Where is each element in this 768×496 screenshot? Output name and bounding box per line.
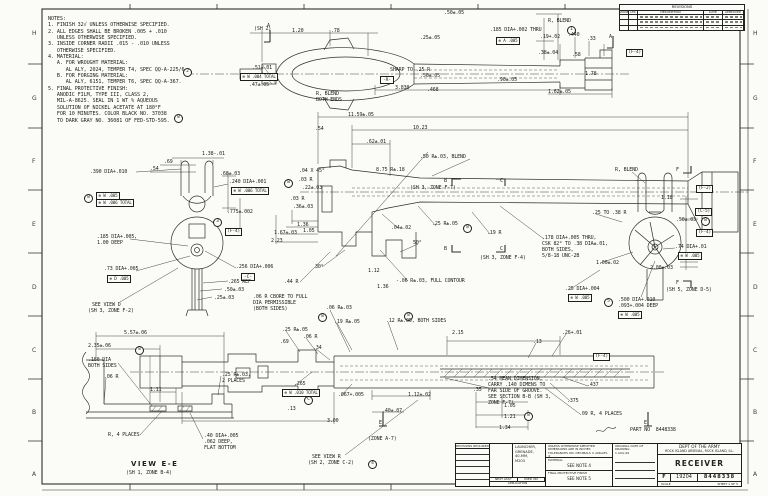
balloon-ref: 8	[135, 346, 144, 355]
dimension-label: .19 R±.05	[334, 320, 360, 326]
dimension-label: .265	[294, 382, 305, 388]
signature-row	[615, 471, 655, 479]
dimension-label: .78	[331, 29, 340, 35]
dimension-label: R, BLEND	[615, 168, 638, 174]
application-label: APPLICATION	[490, 481, 545, 486]
rev-cell	[629, 15, 638, 19]
rev-cell	[638, 15, 704, 19]
dimension-label: 2.35±.06	[88, 344, 111, 350]
dimension-label: .69	[164, 160, 173, 166]
datum-box: -R-	[380, 76, 394, 84]
fscm-code: 19204	[671, 474, 698, 481]
dimension-label: BOTH ENDS	[316, 98, 342, 104]
feature-control-frame: ⊕ A .005	[496, 37, 520, 45]
note-line: 3. INSIDE CORNER RADII .015 - .010 UNLES…	[48, 41, 187, 47]
balloon-ref: C	[304, 396, 313, 405]
rev-cell	[620, 15, 629, 19]
zone-letter-b: B	[32, 409, 36, 416]
dimension-label: .54	[315, 127, 324, 133]
next-assy-cell	[490, 444, 513, 477]
rev-cell	[704, 20, 723, 24]
dimension-label: .067+.005	[338, 393, 364, 399]
revisions-column-label: DATE	[704, 11, 723, 15]
dimension-label: .25±.05	[420, 36, 440, 42]
dimension-label: -.06 R±.03, FULL CONTOUR	[396, 279, 465, 285]
application-block: LAUNCHER,GRENADE,40-MM,M203 NEXT ASSY US…	[490, 444, 546, 486]
dimension-label: .13	[287, 407, 296, 413]
dimension-label: .04 X 45°	[299, 169, 325, 175]
dimension-label: FLAT BOTTOM	[204, 446, 235, 452]
engineering-drawing-sheet: NOTES:1. FINISH 32√ UNLESS OTHERWISE SPE…	[0, 0, 768, 496]
signature-block: ORIGINAL DATE OF DRAWING 1 AUG 69	[613, 444, 658, 486]
dimension-label: .50±.05	[420, 74, 440, 80]
dimension-label: 5/8-18 UNC-2B	[542, 254, 579, 260]
dimension-label: ZONE F-7)	[488, 401, 514, 407]
dimension-label: .06 R	[104, 375, 118, 381]
dimension-label: 10.23	[413, 126, 427, 132]
dimension-label: 1.12±.02	[408, 393, 431, 399]
dimension-label: 1.11	[150, 388, 161, 394]
note-line: TO DARK GRAY NO. 36081 OF FED-STD-595.	[48, 118, 187, 124]
dimension-label: F	[676, 281, 679, 287]
dimension-label: 1.21	[504, 415, 515, 421]
dimension-label: .12 R±.05, BOTH SIDES	[386, 319, 446, 325]
dimension-label: 2.00±.03	[650, 266, 673, 272]
dimension-label: .093+.004 DEEP	[618, 304, 658, 310]
revision-row	[620, 26, 744, 31]
dimension-label: .74 DIA+.01	[675, 245, 706, 251]
balloon-ref: 8	[524, 412, 533, 421]
revisions-column-label: DESCRIPTION	[638, 11, 704, 15]
dimension-label: 1.12	[368, 269, 379, 275]
dimension-label: 2 PLACES	[222, 379, 245, 385]
rev-cell	[629, 26, 638, 30]
zone-letter-e: E	[32, 221, 36, 228]
rev-cell	[704, 15, 723, 19]
dimension-label: .437	[587, 383, 598, 389]
dimension-label: .40±.07	[382, 409, 402, 415]
zone-letter-c: C	[32, 347, 36, 354]
estimates-block: REVISIONS REQUIRED	[456, 444, 490, 486]
zone-letter-g: G	[753, 95, 758, 102]
dimension-label: .468	[427, 88, 438, 94]
feature-control-frame: ⊕ W .004 TOTAL	[240, 73, 278, 81]
rev-cell	[629, 20, 638, 24]
revisions-column-label: APPROVED	[723, 11, 744, 15]
dimension-label: .265 REF	[228, 280, 251, 286]
revisions-column-label: LTR	[629, 11, 638, 15]
title-block: REVISIONS REQUIRED LAUNCHER,GRENADE,40-M…	[455, 443, 742, 487]
balloon-ref: 5	[604, 298, 613, 307]
feature-control-frame: ⊕ W .005	[618, 311, 642, 319]
dimension-label: 1.00±.02	[596, 261, 619, 267]
zone-letter-a: A	[32, 471, 36, 478]
dimension-label: .50±.05	[444, 11, 464, 17]
dimension-label: .47±.05	[249, 83, 269, 89]
dimension-label: .50 R±.03, BLEND	[420, 155, 466, 161]
revisions-column-label: ZONE	[620, 11, 629, 15]
dimension-label: .90±.05	[497, 78, 517, 84]
dimension-label: A	[267, 24, 270, 30]
dimension-label: PART NO 8448338	[630, 428, 676, 434]
identification-block: DEPT OF THE ARMY ROCK ISLAND ARSENAL, RO…	[658, 444, 741, 486]
drawing-number: 8448338	[698, 474, 741, 481]
dimension-label: 1.78	[585, 72, 596, 78]
dimension-label: C	[500, 179, 503, 185]
zone-letter-h: H	[753, 30, 758, 37]
dimension-label: .13	[533, 340, 542, 346]
dimension-label: (SH 2, ZONE C-2)	[308, 461, 354, 467]
flag-ref: (F-4)	[626, 49, 643, 57]
dimension-label: 8.75 R±.18	[376, 168, 405, 174]
dimension-label: .44 R	[284, 280, 298, 286]
flag-ref: (C-5)	[695, 208, 712, 216]
note-line: AL ALY, 6151, TEMPER T6, SPEC QQ-A-367.	[48, 79, 187, 85]
dimension-label: .69	[280, 340, 289, 346]
dimension-label: .390 DIA+.010	[90, 170, 127, 176]
sheet-label: SHEET 1 OF 5	[717, 482, 738, 486]
dimension-label: 1.34	[499, 426, 510, 432]
flag-ref: (F-2)	[696, 185, 713, 193]
dimension-label: .06 R	[303, 335, 317, 341]
dimension-label: E	[379, 421, 382, 427]
dimension-label: .51±.01	[252, 66, 272, 72]
dimension-label: .19 R	[487, 231, 501, 237]
dimension-label: 2.23	[271, 239, 282, 245]
finish-label: FINAL PROTECTIVE FINISH	[548, 471, 587, 475]
dimension-label: 5.57±.06	[124, 331, 147, 337]
flag-ref: (F-4)	[696, 229, 713, 237]
dimension-label: 1.36	[377, 285, 388, 291]
dimension-label: .62±.01	[366, 140, 386, 146]
dimension-label: .22±.03	[302, 186, 322, 192]
signature-row	[615, 455, 655, 463]
dimension-label: .775±.002	[227, 210, 253, 216]
dimension-label: BOTH SIDES	[88, 364, 117, 370]
dimension-label: R, BLEND	[548, 19, 571, 25]
rev-cell	[620, 26, 629, 30]
balloon-ref: 4	[368, 460, 377, 469]
dimension-label: .03 R	[298, 178, 312, 184]
dimension-label: (BOTH SIDES)	[253, 307, 287, 313]
balloon-ref: 3	[213, 218, 222, 227]
dimension-label: .240 DIA+.001	[229, 180, 266, 186]
zone-letter-g: G	[32, 95, 37, 102]
dimension-label: C	[500, 247, 503, 253]
estimates-row	[456, 474, 489, 480]
dimension-label: .58	[572, 53, 581, 59]
dimension-label: (SH 3, ZONE F-7)	[410, 186, 456, 192]
dimension-label: .54	[150, 167, 159, 173]
dimension-label: .25 DIA+.004	[565, 287, 599, 293]
tolerance-block: UNLESS OTHERWISE SPECIFIED DIMENSIONS AR…	[546, 444, 613, 486]
dimension-label: .36±.03	[293, 205, 313, 211]
balloon-ref: 2	[183, 68, 192, 77]
zone-letter-d: D	[753, 284, 758, 291]
material-value: SEE NOTE 4	[548, 463, 610, 468]
dimension-label: .256 DIA+.006	[236, 265, 273, 271]
scale-label: SCALE	[661, 482, 671, 486]
used-on-line: M203	[513, 459, 545, 464]
view-title: VIEW E-E	[131, 461, 178, 468]
dimension-label: E	[644, 421, 647, 427]
dimension-label: .68±.03	[220, 172, 240, 178]
dimension-label: .04±.02	[391, 226, 411, 232]
dimension-label: R, 4 PLACES	[108, 433, 139, 439]
revisions-table: REVISIONS ZONELTRDESCRIPTIONDATEAPPROVED	[619, 4, 745, 31]
dimension-label: (SH 3, ZONE F-4)	[480, 256, 526, 262]
dimension-label: .73 DIA+.005	[104, 267, 138, 273]
dimension-label: (SH 3, ZONE F-2)	[88, 309, 134, 315]
dimension-label: 2.15	[452, 331, 463, 337]
dimension-label: .25 R±.05	[432, 222, 458, 228]
feature-control-frame: ⊕ W .006 TOTAL	[96, 199, 134, 207]
flag-ref: (F-4)	[225, 228, 242, 236]
dimension-label: 30°	[315, 265, 324, 271]
dimension-label: 1.38-.01	[202, 152, 225, 158]
zone-letter-b: B	[753, 409, 757, 416]
feature-control-frame: ⊕ W .005	[568, 294, 592, 302]
balloon-ref: 8	[84, 194, 93, 203]
dimension-label: 1.00 DEEP	[97, 241, 123, 247]
dimension-label: F	[676, 168, 679, 174]
dimension-label: .35	[473, 388, 482, 394]
dimension-label: .19+.02	[540, 35, 560, 41]
balloon-ref: 8	[284, 179, 293, 188]
zone-letter-e: E	[753, 221, 757, 228]
rev-cell	[638, 26, 704, 30]
feature-control-frame: ⊕ D .005	[107, 275, 131, 283]
dimension-label: (SH 5, ZONE D-5)	[666, 288, 712, 294]
dimension-label: .09 R, 4 PLACES	[579, 412, 622, 418]
rev-cell	[704, 26, 723, 30]
dimension-label: .50±.03	[676, 218, 696, 224]
zone-letter-a: A	[753, 471, 757, 478]
dimension-label: 1.62±.05	[548, 90, 571, 96]
dimension-label: 50°	[413, 241, 422, 247]
dimension-label: 11.59±.05	[348, 113, 374, 119]
dimension-label: (SH 1, ZONE B-4)	[126, 471, 172, 477]
feature-control-frame: ⊕ W .006 TOTAL	[231, 187, 269, 195]
rev-cell	[723, 26, 744, 30]
note-line: 1. FINISH 32√ UNLESS OTHERWISE SPECIFIED…	[48, 22, 187, 28]
feature-control-frame: ⊕ W .005	[678, 252, 702, 260]
size-code: F	[658, 474, 671, 481]
balloon-ref: 8	[318, 313, 327, 322]
balloon-ref: 8	[701, 217, 710, 226]
feature-control-frame: ⊕ W .010 TOTAL	[282, 389, 320, 397]
balloon-ref: 8	[174, 114, 183, 123]
finish-value: SEE NOTE 5	[548, 476, 610, 481]
dimension-label: 1.67±.03	[274, 231, 297, 237]
dimension-label: 1.20	[292, 29, 303, 35]
dimension-label: .25±.03	[214, 296, 234, 302]
dimension-label: 3.830	[395, 86, 409, 92]
dimension-label: .06 R±.03	[326, 306, 352, 312]
dimension-label: .375	[567, 399, 578, 405]
dimension-label: .185 DIA+.002 THRU	[490, 28, 542, 34]
balloon-ref: 8	[463, 224, 472, 233]
rev-cell	[723, 20, 744, 24]
zone-letter-d: D	[32, 284, 37, 291]
zone-letter-f: F	[753, 158, 756, 165]
rev-cell	[638, 20, 704, 24]
material-label: MATERIAL	[548, 458, 563, 462]
dimension-label: B	[444, 247, 447, 253]
dimension-label: 3.00	[327, 419, 338, 425]
dimension-label: B	[444, 179, 447, 185]
dimension-label: 1.05	[303, 229, 314, 235]
dimension-label: .440	[568, 33, 579, 39]
zone-letter-f: F	[32, 158, 35, 165]
dimension-label: 1.18	[661, 196, 672, 202]
dimension-label: A	[609, 35, 612, 41]
zone-letter-c: C	[753, 347, 757, 354]
dimension-label: .25 TO .38 R	[592, 211, 626, 217]
view-left-end	[120, 158, 240, 316]
drawing-title: RECEIVER	[658, 455, 741, 473]
dimension-label: .50±.03	[224, 288, 244, 294]
zone-letter-h: H	[32, 30, 37, 37]
rev-cell	[723, 15, 744, 19]
dimension-label: .34	[313, 346, 322, 352]
dimension-label: .33	[587, 37, 596, 43]
dimension-label: .03 R	[290, 197, 304, 203]
dimension-label: .25 R±.05	[282, 328, 308, 334]
used-on-cell: LAUNCHER,GRENADE,40-MM,M203	[513, 444, 545, 477]
flag-ref: (F-4)	[593, 353, 610, 361]
general-notes: NOTES:1. FINISH 32√ UNLESS OTHERWISE SPE…	[48, 16, 187, 124]
signature-row	[615, 463, 655, 471]
dimension-label: (ZONE A-7)	[368, 437, 397, 443]
rev-cell	[620, 20, 629, 24]
note-line: FOR 10 MINUTES. COLOR BLACK NO. 37038	[48, 111, 187, 117]
dimension-label: .38±.04	[538, 51, 558, 57]
dimension-label: .26+.01	[562, 331, 582, 337]
